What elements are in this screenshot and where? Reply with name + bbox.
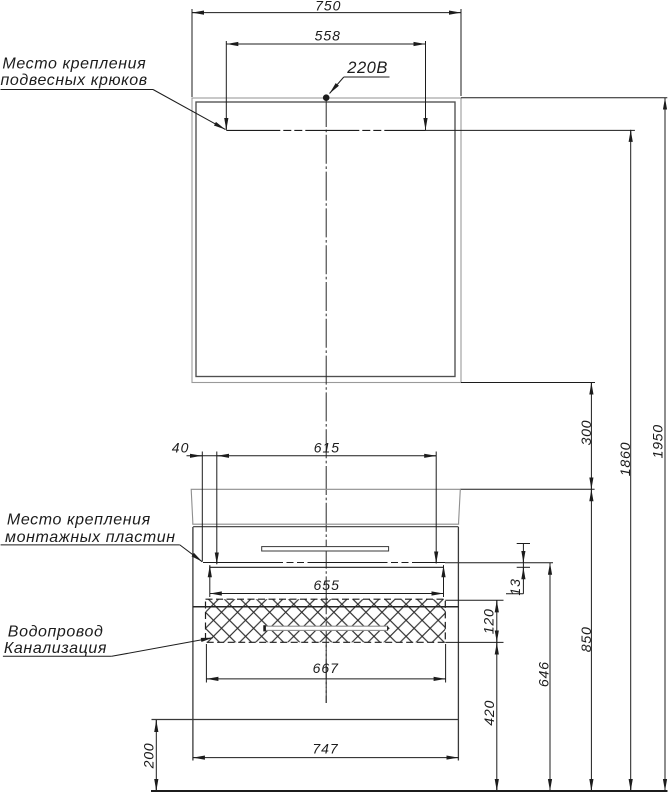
svg-text:420: 420 [482,700,498,726]
svg-text:Водопровод: Водопровод [8,624,104,641]
svg-text:747: 747 [312,741,339,757]
svg-text:655: 655 [314,577,340,593]
svg-text:Место крепления: Место крепления [7,512,151,529]
svg-text:667: 667 [313,660,340,676]
svg-text:120: 120 [482,608,498,634]
svg-text:Место крепления: Место крепления [2,56,146,73]
svg-text:750: 750 [315,0,341,13]
svg-text:200: 200 [141,743,157,770]
svg-text:1860: 1860 [618,442,634,476]
svg-text:615: 615 [314,440,340,456]
svg-text:646: 646 [536,661,552,687]
svg-text:40: 40 [172,439,190,455]
svg-text:558: 558 [315,28,341,44]
svg-text:Канализация: Канализация [4,640,107,657]
svg-text:13: 13 [507,578,523,596]
svg-text:220В: 220В [346,59,388,77]
svg-text:монтажных пластин: монтажных пластин [5,529,176,546]
svg-text:850: 850 [579,626,595,652]
svg-text:подвесных крюков: подвесных крюков [1,72,148,89]
svg-text:300: 300 [579,420,595,446]
svg-text:1950: 1950 [651,424,667,458]
